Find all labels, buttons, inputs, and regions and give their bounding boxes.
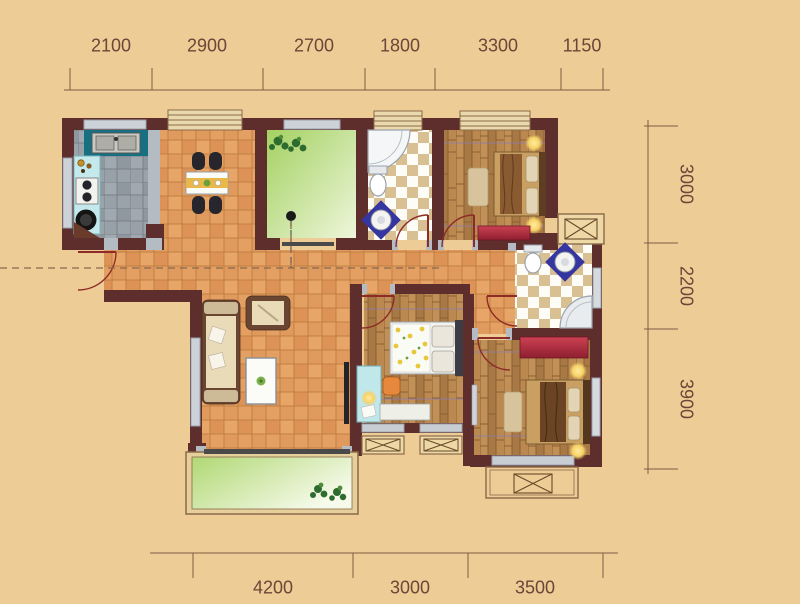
study-door-pivot xyxy=(286,211,296,221)
window-bedroom2-bottom-1 xyxy=(362,424,404,432)
master-lamp xyxy=(569,442,587,460)
dining-chair xyxy=(192,152,205,170)
master-bay-window xyxy=(486,467,578,498)
dim-right-3: 3900 xyxy=(676,379,697,419)
dim-top-3: 2700 xyxy=(294,36,334,57)
balcony xyxy=(186,449,358,514)
dining-chair xyxy=(192,196,205,214)
living-coffee-table xyxy=(246,358,276,404)
bedroom1-lamp xyxy=(525,134,543,152)
bedroom1-bed xyxy=(494,152,546,216)
dim-top-2: 2900 xyxy=(187,36,227,57)
dim-top-5: 3300 xyxy=(478,36,518,57)
room-study-floor xyxy=(267,130,356,238)
bedroom1-dresser xyxy=(478,226,530,240)
window-master-right xyxy=(592,378,600,436)
dim-top-1: 2100 xyxy=(91,36,131,57)
study-threshold xyxy=(282,242,334,246)
master-rug xyxy=(504,392,522,432)
bedroom2-chair xyxy=(383,377,400,395)
window-bathroom1-bay xyxy=(374,111,422,130)
dim-right-1: 3000 xyxy=(676,164,697,204)
bathroom1-toilet xyxy=(369,166,387,196)
dining-table xyxy=(186,172,228,194)
dining-chair xyxy=(209,152,222,170)
window-bedroom2-bottom-2 xyxy=(420,424,462,432)
floor-plan-canvas: 2100 2900 2700 1800 3300 1150 3000 2200 … xyxy=(0,0,800,604)
dining-chair xyxy=(209,196,222,214)
window-kitchen-top xyxy=(84,120,146,129)
dim-top-6: 1150 xyxy=(563,36,602,57)
bedroom2-bed xyxy=(390,320,463,376)
window-bathroom2-right xyxy=(593,268,601,308)
dim-top-4: 1800 xyxy=(380,36,420,57)
living-tv xyxy=(344,362,349,424)
dim-bottom-1: 4200 xyxy=(253,578,293,599)
master-mirror xyxy=(472,385,477,425)
duct-shaft xyxy=(558,214,604,244)
master-bed xyxy=(526,380,590,444)
window-kitchen-left xyxy=(63,158,72,228)
window-bedroom1-bay xyxy=(460,111,530,130)
bedroom1-rug xyxy=(468,168,488,206)
dim-bottom-3: 3500 xyxy=(515,578,555,599)
master-lamp xyxy=(569,362,587,380)
balcony-sliding-door xyxy=(204,449,350,454)
kitchen-cooktop xyxy=(76,178,98,204)
ac-platform-1 xyxy=(362,436,404,454)
kitchen-sink xyxy=(92,133,140,153)
dim-right-2: 2200 xyxy=(676,266,697,306)
window-living-left xyxy=(191,338,200,426)
dim-bottom-2: 3000 xyxy=(390,578,430,599)
master-wardrobe xyxy=(520,337,588,358)
ac-platform-2 xyxy=(420,436,462,454)
living-sofa xyxy=(202,300,240,404)
window-dining-bay xyxy=(168,110,242,130)
bathroom2-toilet xyxy=(524,245,542,273)
window-study-top xyxy=(284,120,340,129)
window-master-bottom xyxy=(492,456,574,465)
living-armchair xyxy=(246,296,290,330)
